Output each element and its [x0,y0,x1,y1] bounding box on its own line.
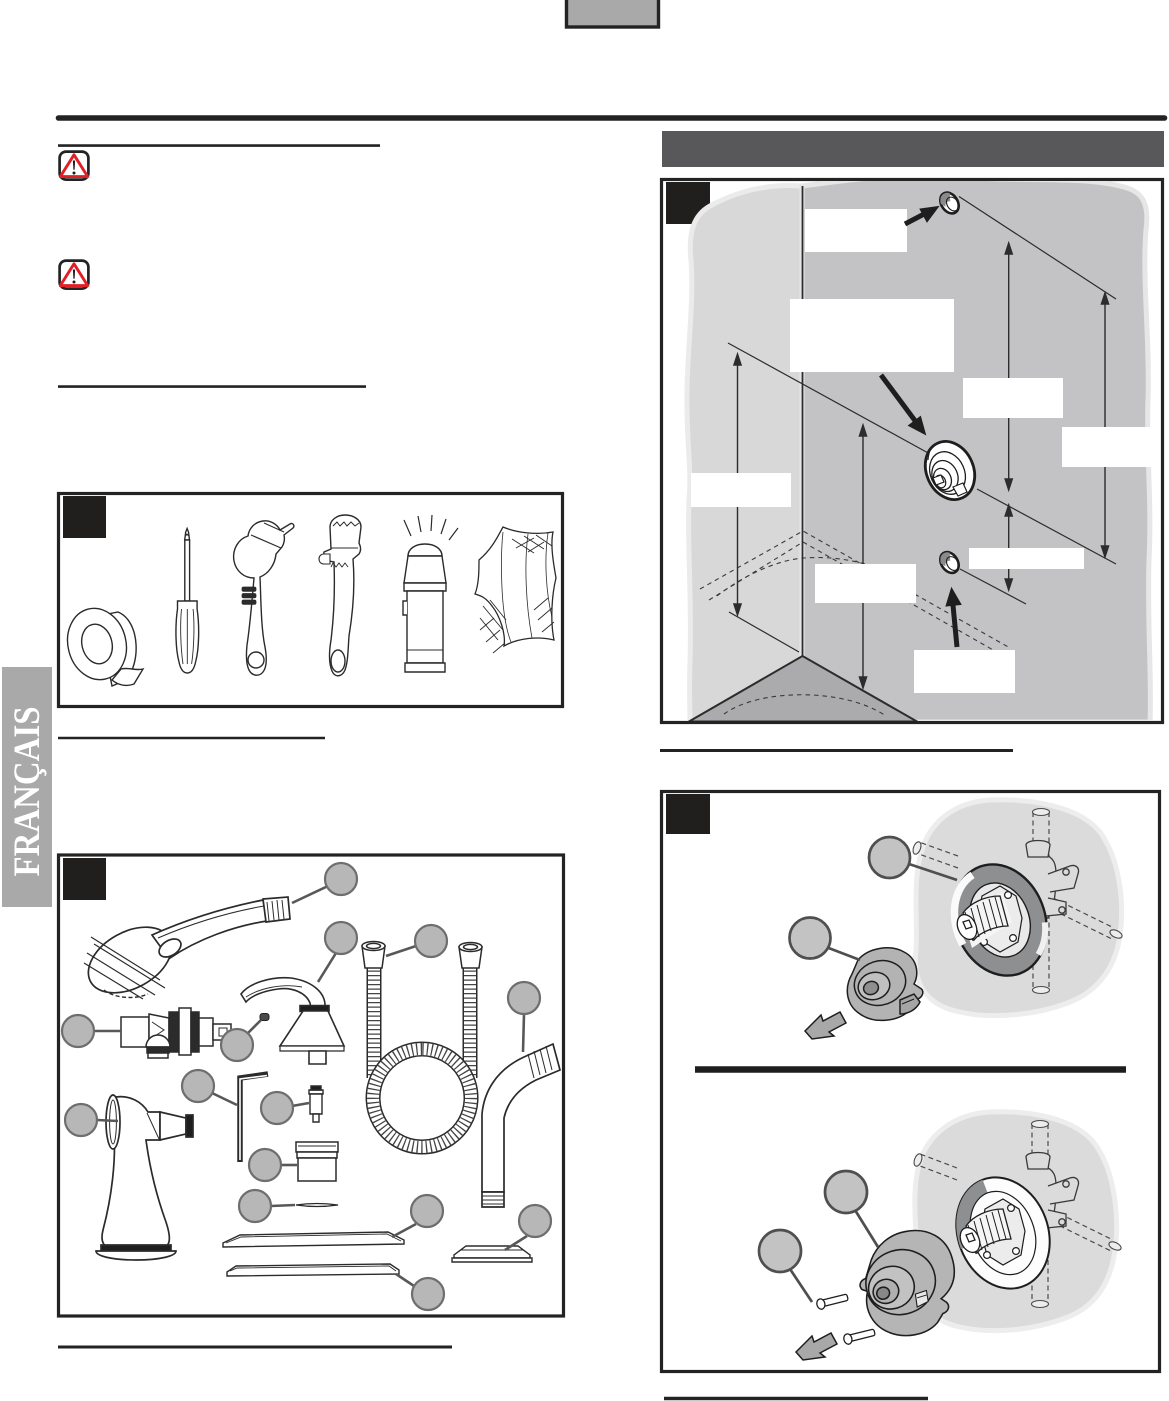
svg-text:FRANÇAIS: FRANÇAIS [7,707,48,877]
